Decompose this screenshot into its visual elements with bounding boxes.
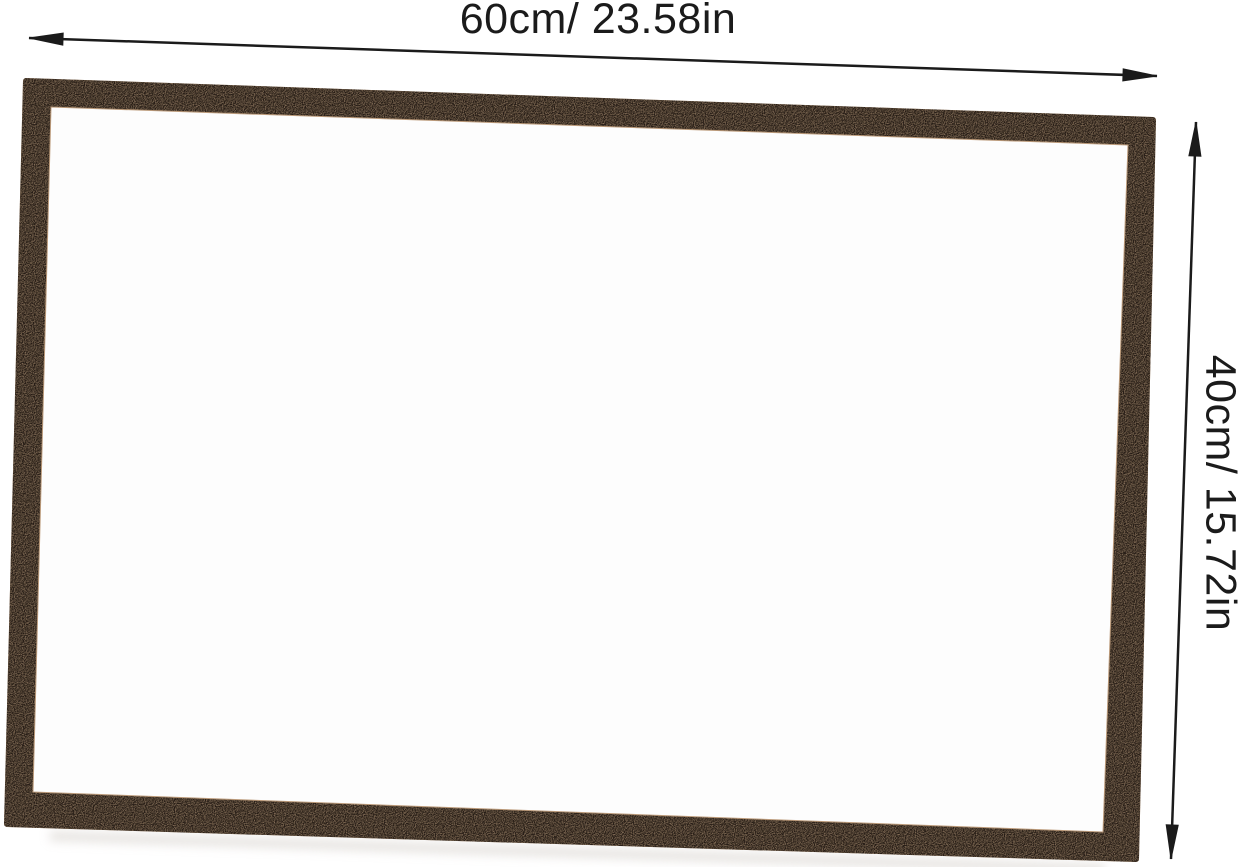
height-dimension-label: 40cm/ 15.72in (1199, 355, 1241, 632)
board-surface (33, 107, 1128, 832)
arrowhead-left-icon (29, 33, 63, 45)
arrowhead-down-icon (1166, 825, 1178, 859)
product-image: 60cm/ 23.58in 40cm/ 15.72in (0, 0, 1241, 867)
arrowhead-up-icon (1189, 122, 1201, 156)
width-dimension-label: 60cm/ 23.58in (460, 0, 737, 41)
height-dimension-line (1171, 122, 1196, 859)
arrowhead-right-icon (1123, 69, 1157, 81)
dimension-diagram-canvas (0, 0, 1241, 867)
width-dimension-line (29, 38, 1157, 76)
